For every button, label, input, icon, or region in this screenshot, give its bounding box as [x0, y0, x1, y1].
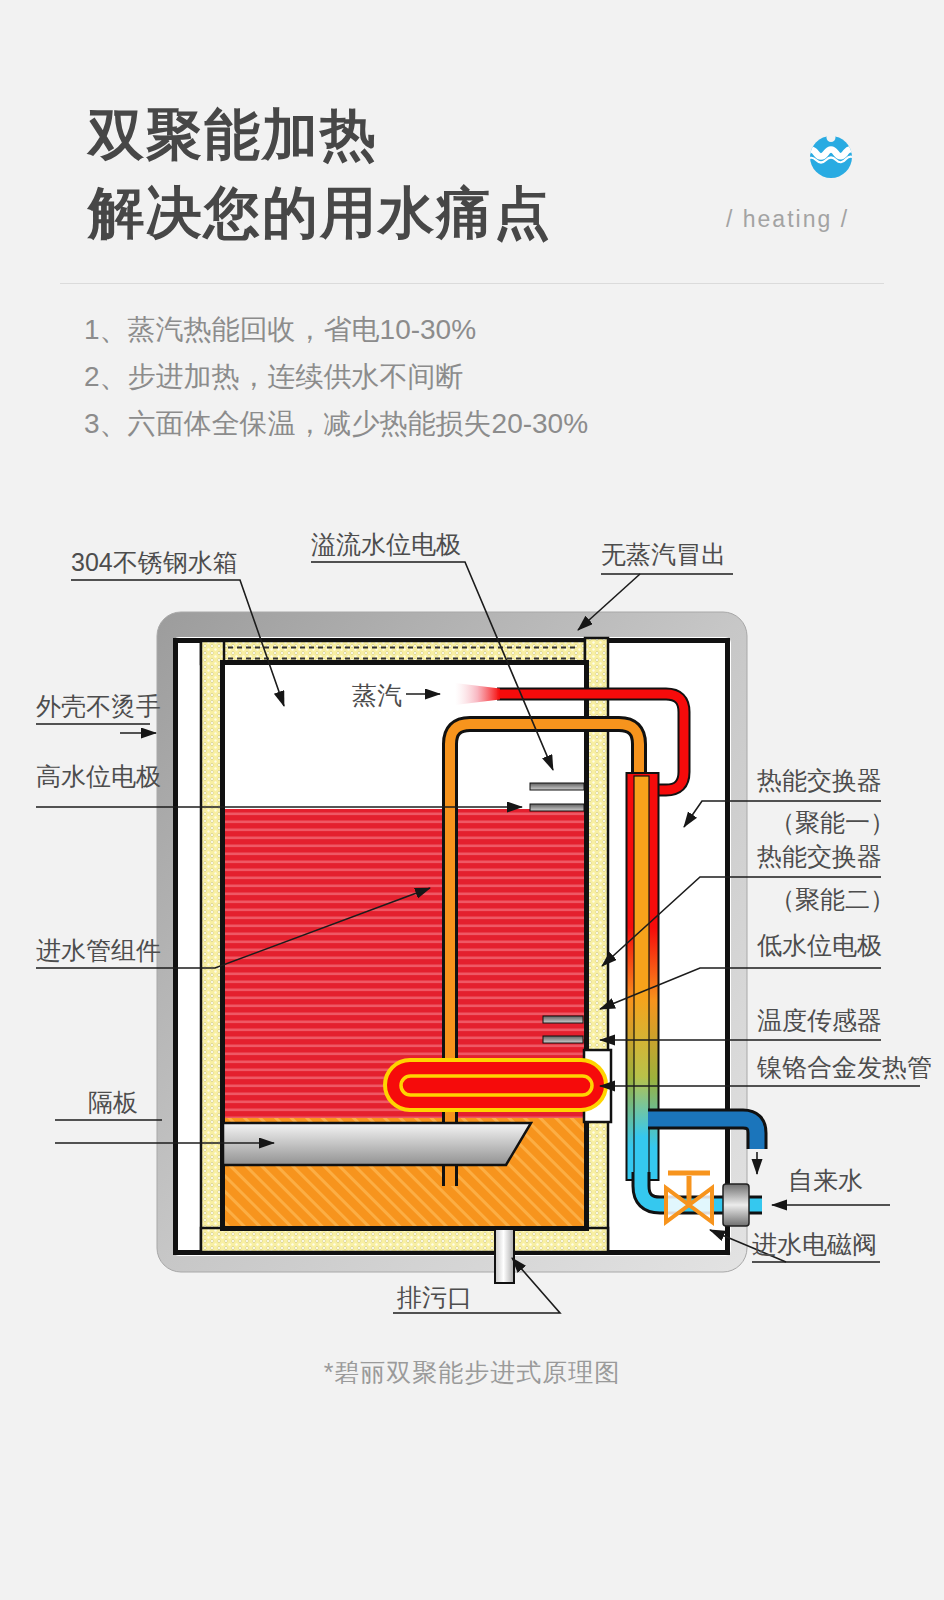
label-hx2-line2: （聚能二）	[770, 883, 895, 916]
label-cool-shell: 外壳不烫手	[36, 690, 161, 723]
label-hx1-line1: 热能交换器	[757, 764, 882, 797]
promo-page: 双聚能加热 解决您的用水痛点 / heating / 1、蒸汽热能回收，省电10…	[0, 0, 944, 1600]
label-tank: 304不锈钢水箱	[71, 546, 238, 579]
label-overflow-electrode: 溢流水位电极	[311, 528, 461, 561]
label-no-steam: 无蒸汽冒出	[601, 538, 726, 571]
label-tap-water: 自来水	[788, 1164, 863, 1197]
diagram-caption: *碧丽双聚能步进式原理图	[0, 1356, 944, 1389]
label-baffle: 隔板	[88, 1086, 138, 1119]
label-inlet-valve: 进水电磁阀	[752, 1228, 877, 1261]
water-cup-icon	[806, 133, 854, 178]
label-steam: 蒸汽	[352, 679, 402, 712]
label-drain: 排污口	[397, 1281, 472, 1314]
label-heater-tube: 镍铬合金发热管	[757, 1051, 932, 1084]
label-low-electrode: 低水位电极	[757, 929, 882, 962]
label-inlet-assembly: 进水管组件	[36, 934, 161, 967]
label-hx2-line1: 热能交换器	[757, 840, 882, 873]
label-hx1-line2: （聚能一）	[770, 806, 895, 839]
label-temp-sensor: 温度传感器	[757, 1004, 882, 1037]
label-high-electrode: 高水位电极	[36, 760, 161, 793]
